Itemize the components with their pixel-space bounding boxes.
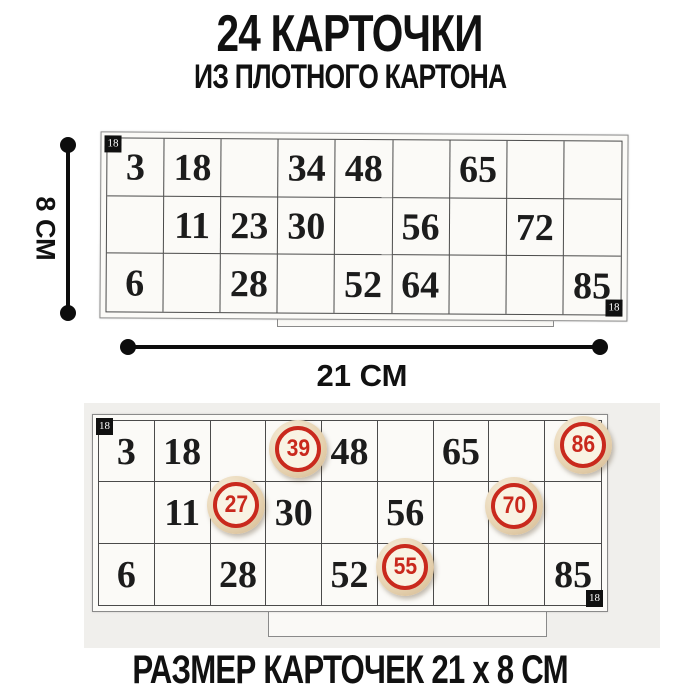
card-cell — [507, 141, 564, 199]
title-material-text: ИЗ ПЛОТНОГО КАРТОНА — [194, 58, 506, 97]
keg-token-number: 70 — [502, 494, 525, 518]
card-cell — [164, 254, 221, 312]
keg-token-86: 86 — [554, 416, 612, 474]
lotto-card-top-grid: 18 18 3183448651123305672628526485 — [105, 137, 622, 315]
keg-token-face: 39 — [275, 426, 321, 472]
card-cell: 23 — [221, 197, 278, 255]
keg-token-face: 86 — [560, 422, 606, 468]
size-caption: РАЗМЕР КАРТОЧЕК 21 х 8 СМ — [0, 648, 700, 693]
card-cell — [221, 139, 278, 197]
keg-token-39: 39 — [269, 420, 327, 478]
keg-token-number: 86 — [571, 433, 594, 457]
card-cell — [278, 255, 335, 313]
card-cell: 48 — [336, 140, 393, 198]
keg-token-face: 70 — [491, 483, 537, 529]
dimension-endpoint-dot — [592, 339, 608, 355]
card-cell — [335, 197, 392, 255]
card-cell: 6 — [106, 254, 163, 312]
keg-token-face: 27 — [213, 482, 259, 528]
card-cell: 65 — [450, 141, 507, 199]
title-material: ИЗ ПЛОТНОГО КАРТОНА — [0, 58, 700, 97]
product-image: 24 КАРТОЧКИ ИЗ ПЛОТНОГО КАРТОНА 8 СМ 18 … — [0, 0, 700, 700]
card-cell: 34 — [279, 139, 336, 197]
keg-token-face: 55 — [382, 544, 428, 590]
keg-token-55: 55 — [376, 538, 434, 596]
card-cell: 72 — [507, 199, 564, 257]
card-number-badge: 18 — [104, 135, 121, 152]
dimension-endpoint-dot — [60, 305, 76, 321]
card-cell: 30 — [278, 197, 335, 255]
card-cell — [107, 196, 164, 254]
card-cell: 18 — [164, 139, 221, 197]
width-dimension-label: 21 СМ — [282, 358, 442, 394]
card-number-badge: 18 — [605, 299, 622, 316]
keg-token-70: 70 — [485, 477, 543, 535]
title-count-text: 24 КАРТОЧКИ — [217, 4, 483, 64]
card-cell — [506, 256, 563, 314]
lotto-card-top: 18 18 3183448651123305672628526485 — [99, 131, 628, 321]
card-cell — [564, 141, 621, 199]
card-cell — [393, 140, 450, 198]
card-cell — [564, 199, 621, 257]
keg-token-number: 55 — [393, 555, 416, 579]
title-count: 24 КАРТОЧКИ — [0, 4, 700, 64]
card-cell — [449, 256, 506, 314]
height-dimension-label: 8 СМ — [30, 194, 61, 264]
size-caption-text: РАЗМЕР КАРТОЧЕК 21 х 8 СМ — [132, 648, 567, 693]
card-cell: 52 — [335, 255, 392, 313]
card-cell: 56 — [392, 198, 449, 256]
width-dimension-line — [127, 345, 601, 349]
card-cell: 28 — [221, 254, 278, 312]
lotto-card-photo: 18 18 3183448651123305672628526485 39862… — [92, 414, 608, 612]
card-cell: 64 — [392, 256, 449, 314]
keg-token-27: 27 — [207, 476, 265, 534]
keg-token-number: 27 — [224, 493, 247, 517]
card-cell: 11 — [164, 196, 221, 254]
height-dimension-line — [66, 143, 70, 315]
token-layer: 3986277055 — [99, 421, 601, 605]
keg-token-number: 39 — [286, 437, 309, 461]
card-cell — [449, 198, 506, 256]
